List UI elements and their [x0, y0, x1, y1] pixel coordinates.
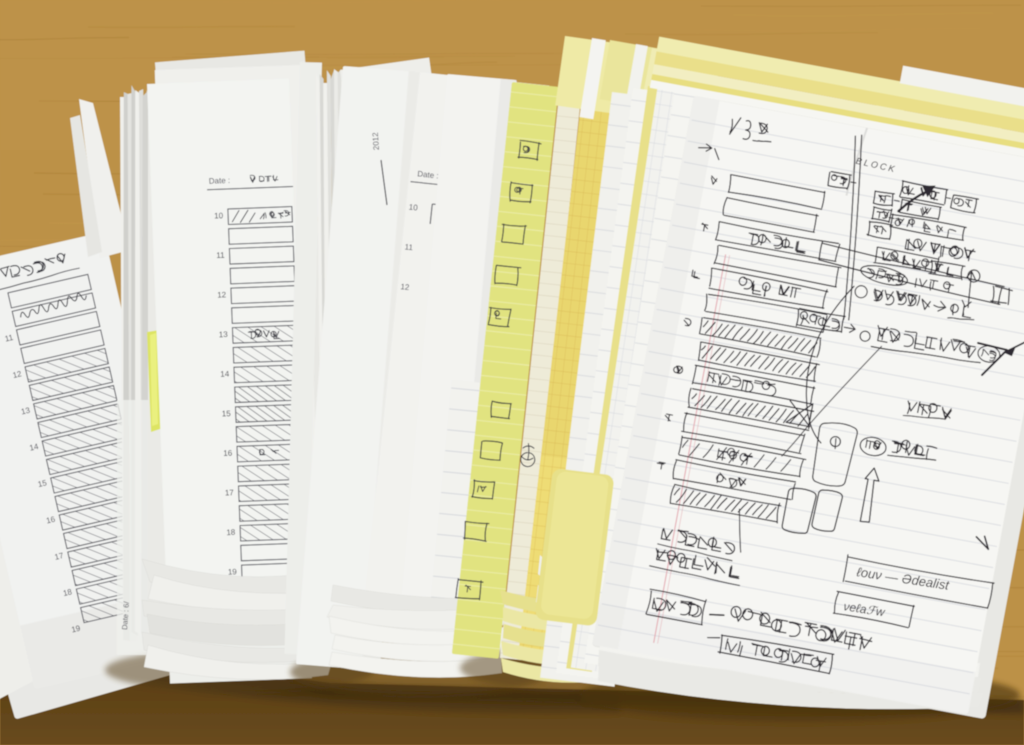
- svg-text:17: 17: [225, 488, 235, 497]
- svg-text:10: 10: [408, 203, 418, 213]
- svg-text:15: 15: [222, 409, 232, 418]
- svg-text:13: 13: [219, 330, 229, 339]
- svg-text:Date :: Date :: [209, 176, 231, 186]
- svg-text:11: 11: [404, 242, 414, 252]
- svg-text:2012: 2012: [371, 132, 381, 151]
- svg-text:14: 14: [220, 369, 230, 378]
- svg-text:10: 10: [214, 211, 224, 220]
- svg-text:19: 19: [228, 567, 238, 576]
- svg-text:18: 18: [226, 528, 236, 537]
- svg-text:11: 11: [216, 251, 225, 260]
- svg-text:16: 16: [223, 449, 233, 458]
- svg-text:12: 12: [217, 290, 227, 299]
- svg-text:12: 12: [400, 282, 410, 292]
